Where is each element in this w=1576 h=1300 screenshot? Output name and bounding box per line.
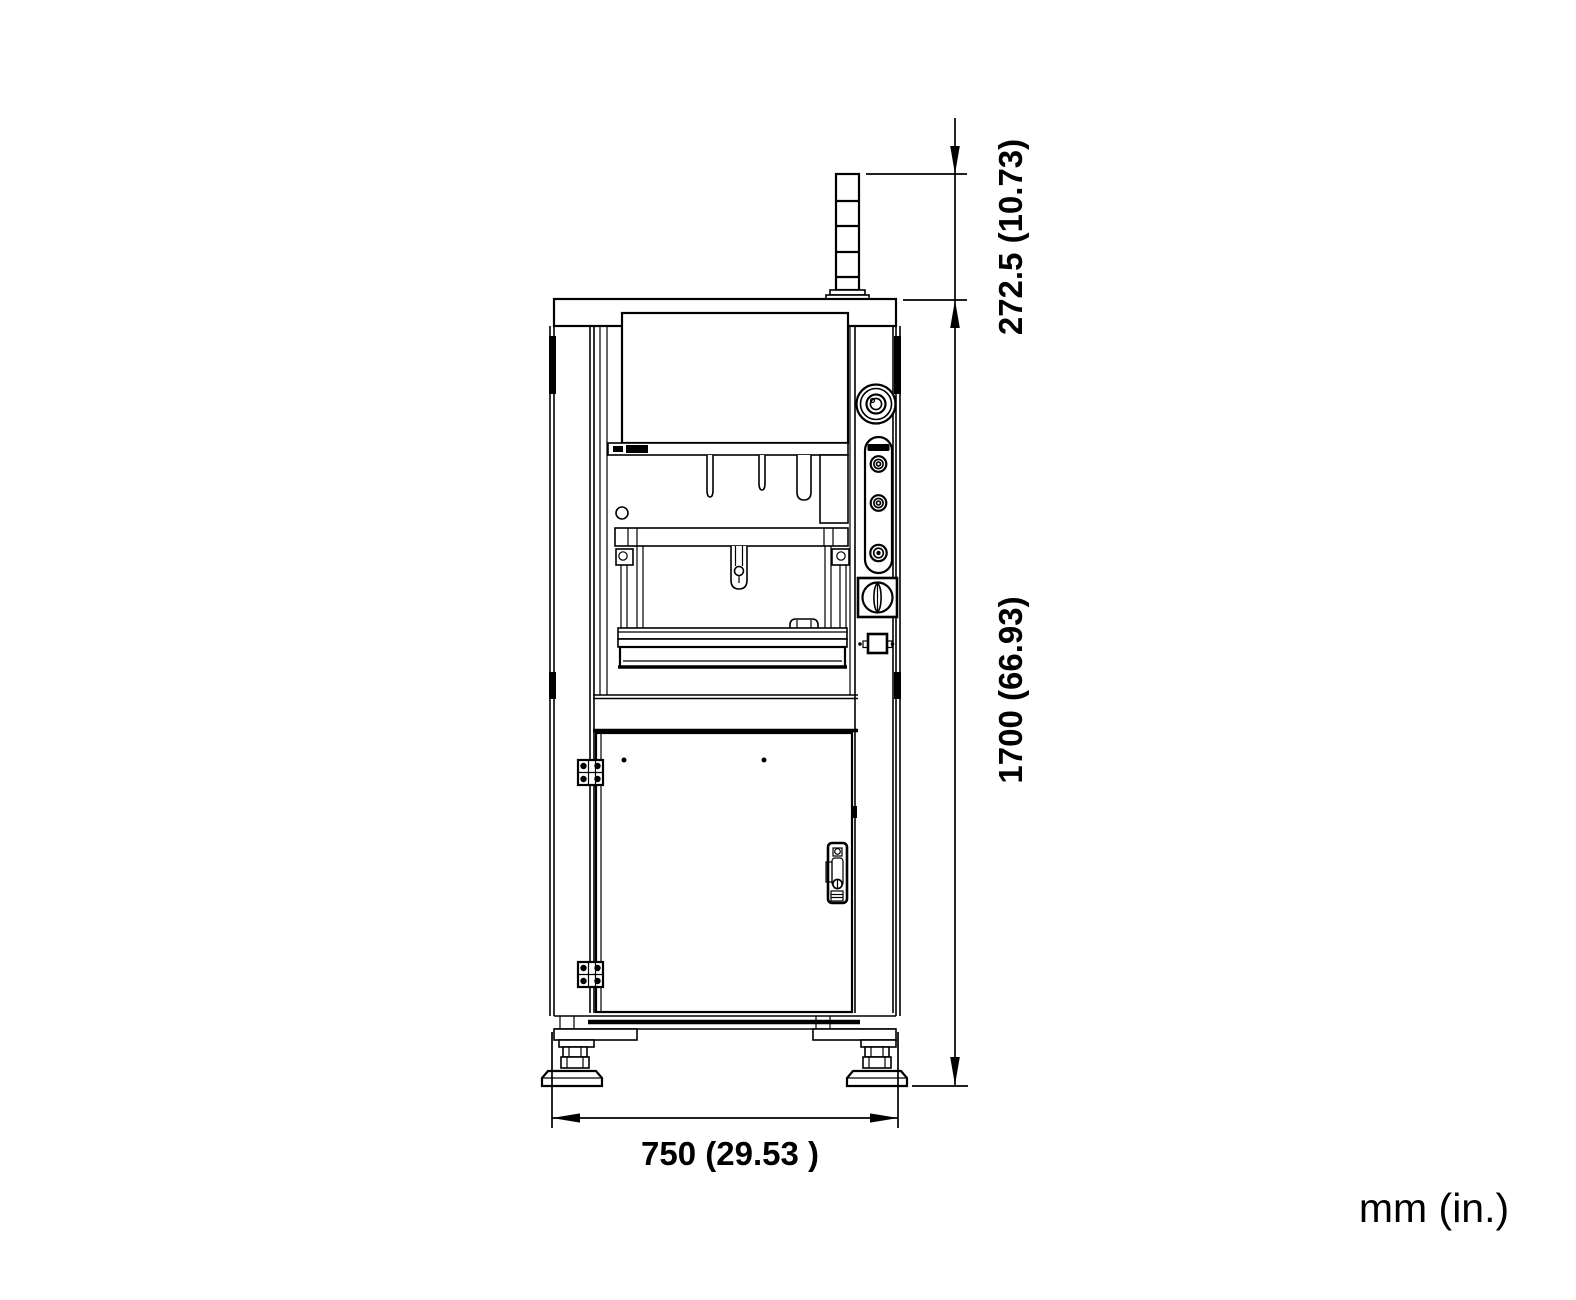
dimension-drawing-canvas: 272.5 (10.73) 1700 (66.93) 750 (29.53 ) … [0, 0, 1576, 1300]
door-screw [622, 758, 627, 763]
side-latch-mark [549, 336, 556, 394]
mid-band [593, 695, 858, 731]
arrowhead-left [552, 1113, 580, 1122]
machine-base [554, 1016, 896, 1040]
press-rods [616, 455, 848, 523]
door-latch-mark [852, 806, 857, 818]
door-handle [826, 843, 847, 903]
units-label: mm (in.) [1359, 1185, 1509, 1231]
push-button-2 [871, 495, 887, 511]
press-head-panel [608, 313, 848, 455]
work-table [618, 628, 847, 667]
dimension-label-overall-height: 1700 (66.93) [992, 596, 1029, 783]
leveling-foot-left [542, 1040, 602, 1086]
side-latch-mark [894, 336, 901, 394]
nameplate-label [613, 445, 648, 453]
dimension-label-tower-height: 272.5 (10.73) [992, 139, 1029, 335]
push-button-panel [865, 437, 892, 573]
side-latch-mark [894, 672, 901, 699]
dimension-label-overall-width: 750 (29.53 ) [641, 1135, 819, 1172]
door-screw [762, 758, 767, 763]
arrowhead-right [870, 1113, 898, 1122]
signal-tower [826, 174, 869, 300]
panel-label [868, 444, 890, 451]
emergency-stop-button [857, 385, 896, 424]
push-button-1 [871, 456, 887, 472]
connector-fitting [858, 634, 894, 653]
main-power-switch [858, 578, 897, 617]
arrowhead-up [950, 300, 960, 328]
sensor-hole [616, 507, 628, 519]
control-panel [857, 385, 898, 654]
center-spindle [731, 546, 747, 589]
arrowhead-down [950, 1057, 960, 1085]
side-latch-mark [549, 672, 556, 699]
cross-beam [615, 528, 848, 546]
push-button-3 [870, 545, 886, 561]
table-clamp [790, 619, 818, 628]
cabinet-door [596, 733, 857, 1012]
door-hinge-top [578, 760, 603, 785]
press-side-panel [820, 455, 848, 523]
arrowhead-down [950, 146, 960, 174]
door-hinge-bottom [578, 962, 603, 987]
